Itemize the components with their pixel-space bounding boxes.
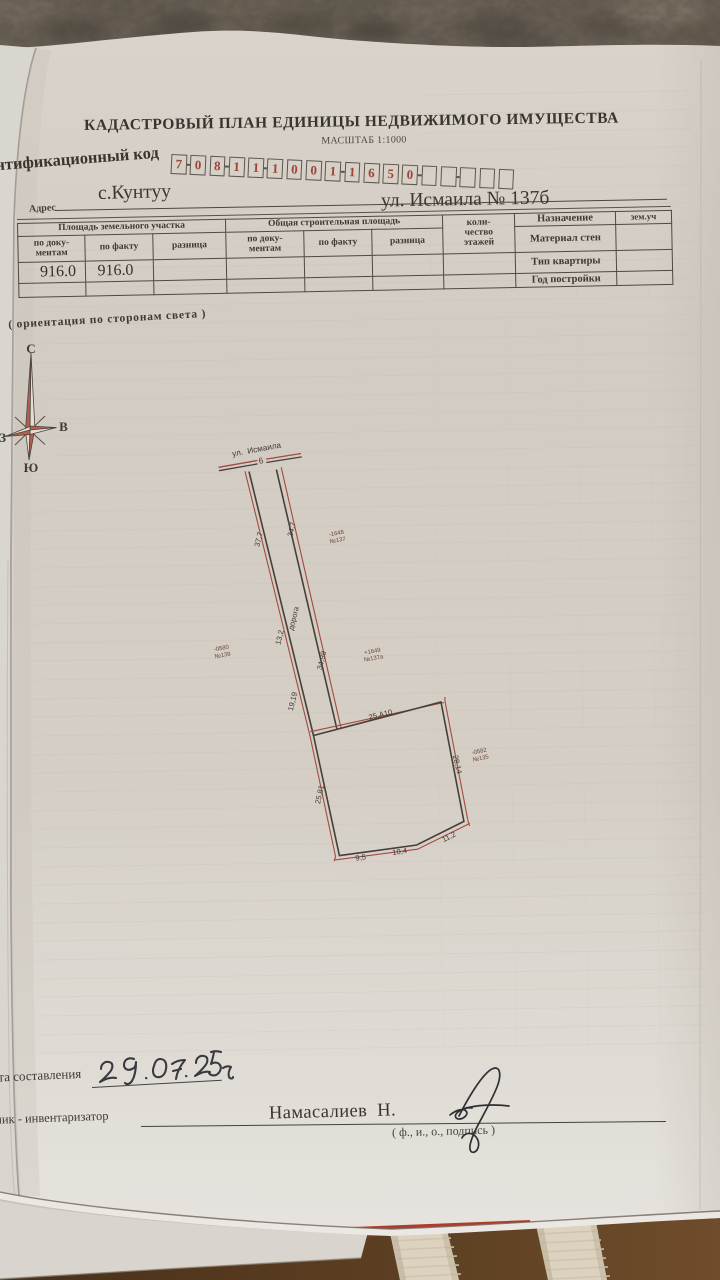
svg-text:дорога: дорога xyxy=(286,605,301,631)
svg-text:28,14: 28,14 xyxy=(451,754,464,775)
svg-text:Ю: Ю xyxy=(24,460,39,475)
svg-text:25,А10: 25,А10 xyxy=(368,707,393,721)
svg-text:13,2: 13,2 xyxy=(273,629,285,646)
svg-text:В: В xyxy=(59,419,68,434)
svg-text:19,19: 19,19 xyxy=(286,691,299,712)
svg-text:С: С xyxy=(26,341,35,356)
svg-text:34,98: 34,98 xyxy=(315,650,328,671)
svg-text:9,5: 9,5 xyxy=(355,852,367,862)
svg-text:6: 6 xyxy=(258,455,265,466)
svg-text:10,4: 10,4 xyxy=(392,846,408,857)
svg-text:З: З xyxy=(0,430,6,445)
svg-text:34,7: 34,7 xyxy=(285,521,297,538)
